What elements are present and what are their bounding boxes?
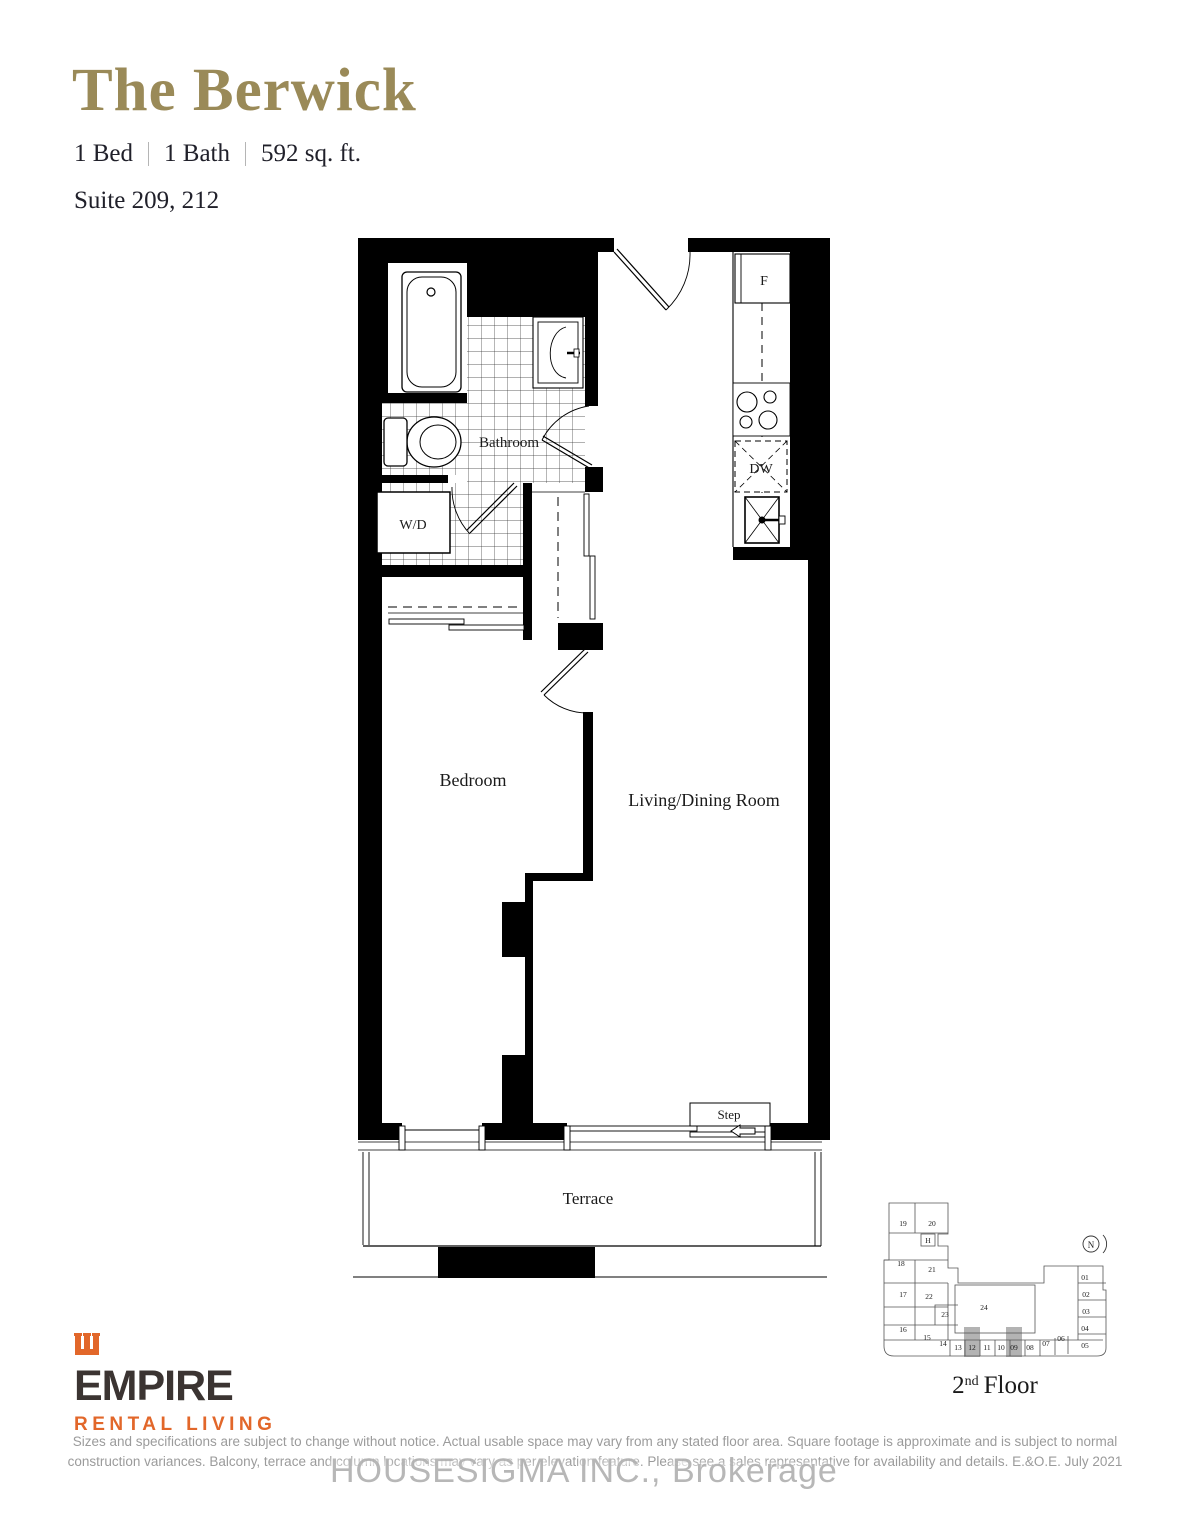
key-plan-unit-H: H <box>925 1236 931 1245</box>
floor-label: 2ndFloor <box>952 1372 1038 1399</box>
key-plan-unit-02: 02 <box>1082 1290 1090 1299</box>
terrace-label: Terrace <box>563 1189 614 1208</box>
bedroom-label: Bedroom <box>440 770 507 790</box>
key-plan-unit-15: 15 <box>923 1333 931 1342</box>
key-plan-unit-14: 14 <box>939 1339 947 1348</box>
hall-closet <box>532 492 595 619</box>
kitchen-sink <box>745 497 785 543</box>
floorplan-sheet: The Berwick 1 Bed 1 Bath 592 sq. ft. Sui… <box>0 0 1187 1536</box>
key-plan-unit-10: 10 <box>997 1343 1005 1352</box>
toilet <box>384 417 461 467</box>
empire-logo: EMPIRE RENTAL LIVING <box>74 1331 276 1436</box>
housesigma-watermark: HOUSESIGMA INC., Brokerage <box>330 1452 830 1491</box>
castle-icon <box>74 1331 100 1357</box>
key-plan-unit-20: 20 <box>928 1219 936 1228</box>
key-plan-unit-12: 12 <box>968 1343 976 1352</box>
key-plan-unit-04: 04 <box>1081 1324 1089 1333</box>
key-plan-unit-19: 19 <box>899 1219 907 1228</box>
kitchen <box>733 252 790 547</box>
key-plan-unit-23: 23 <box>941 1310 949 1319</box>
cooktop <box>733 383 790 436</box>
compass: N <box>1083 1235 1107 1253</box>
key-plan-unit-22: 22 <box>925 1292 933 1301</box>
key-plan-unit-03: 03 <box>1082 1307 1090 1316</box>
step-label: Step <box>717 1107 740 1122</box>
highlighted-unit-12 <box>964 1327 980 1357</box>
highlighted-unit-09 <box>1006 1327 1022 1357</box>
key-plan-unit-08: 08 <box>1026 1343 1034 1352</box>
logo-name: EMPIRE <box>74 1365 276 1408</box>
key-plan-unit-17: 17 <box>899 1290 907 1299</box>
entry-door <box>614 249 690 310</box>
washer-dryer-label: W/D <box>399 518 426 533</box>
disclaimer-line-1: Sizes and specifications are subject to … <box>60 1432 1130 1452</box>
key-plan-unit-01: 01 <box>1081 1273 1089 1282</box>
key-plan-unit-21: 21 <box>928 1265 936 1274</box>
bathtub <box>388 263 467 393</box>
fridge-label: F <box>760 274 768 289</box>
compass-arc <box>1103 1235 1107 1253</box>
bathroom-label: Bathroom <box>479 435 539 451</box>
bedroom-door <box>541 649 588 713</box>
bathroom-sink-vanity <box>533 317 583 388</box>
bedroom-closet <box>388 607 525 630</box>
compass-n-label: N <box>1088 1240 1095 1250</box>
key-plan-unit-24: 24 <box>980 1303 988 1312</box>
key-plan-unit-09: 09 <box>1010 1343 1018 1352</box>
key-plan-unit-05: 05 <box>1081 1341 1089 1350</box>
key-plan-unit-13: 13 <box>954 1343 962 1352</box>
key-plan-unit-06: 06 <box>1057 1334 1065 1343</box>
key-plan-unit-16: 16 <box>899 1325 907 1334</box>
key-plan-unit-18: 18 <box>897 1259 905 1268</box>
key-plan: 1920H18211722232416151413121110090807060… <box>884 1203 1107 1399</box>
floor-plan-drawing: Bathroom W/D F DW Bedroom Living/Dining … <box>0 0 1187 1536</box>
living-dining-label: Living/Dining Room <box>628 790 780 810</box>
key-plan-unit-07: 07 <box>1042 1339 1050 1348</box>
key-plan-unit-11: 11 <box>983 1343 990 1352</box>
dishwasher-label: DW <box>749 462 773 477</box>
key-plan-unit-numbers: 1920H18211722232416151413121110090807060… <box>897 1219 1090 1352</box>
